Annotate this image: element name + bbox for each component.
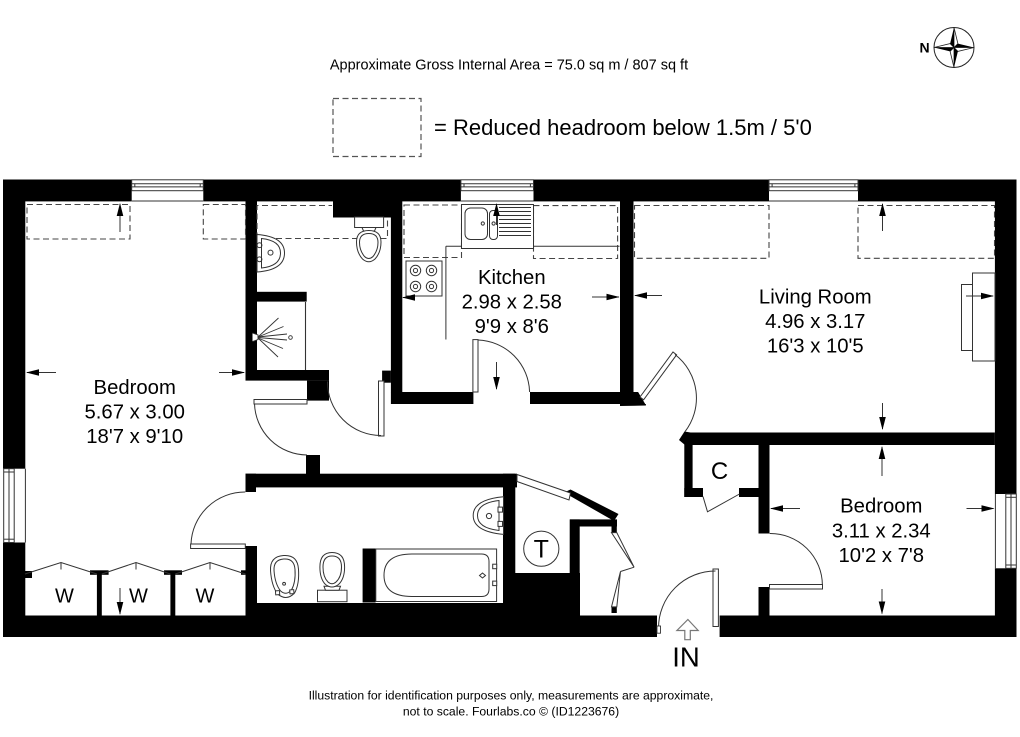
- svg-text:Kitchen: Kitchen: [478, 267, 546, 289]
- svg-text:IN: IN: [672, 642, 700, 673]
- svg-text:T: T: [534, 536, 549, 564]
- svg-text:Living Room: Living Room: [759, 287, 872, 309]
- svg-text:W: W: [55, 586, 74, 608]
- svg-text:16'3 x 10'5: 16'3 x 10'5: [767, 336, 864, 358]
- svg-text:5.67 x 3.00: 5.67 x 3.00: [85, 402, 185, 424]
- svg-text:not to scale. Fourlabs.co © (I: not to scale. Fourlabs.co © (ID1223676): [403, 705, 619, 719]
- svg-text:9'9 x 8'6: 9'9 x 8'6: [475, 316, 549, 338]
- svg-text:2.98 x 2.58: 2.98 x 2.58: [462, 292, 562, 314]
- svg-text:= Reduced headroom below 1.5m: = Reduced headroom below 1.5m / 5'0: [434, 115, 812, 140]
- svg-text:3.11 x 2.34: 3.11 x 2.34: [832, 520, 931, 542]
- svg-text:18'7 x 9'10: 18'7 x 9'10: [86, 426, 183, 448]
- svg-text:W: W: [196, 586, 215, 608]
- svg-text:C: C: [711, 458, 728, 485]
- svg-text:Illustration for identificatio: Illustration for identification purposes…: [309, 689, 714, 703]
- svg-text:Bedroom: Bedroom: [840, 496, 922, 518]
- svg-text:Bedroom: Bedroom: [94, 377, 176, 399]
- svg-text:W: W: [129, 586, 148, 608]
- svg-text:Approximate Gross Internal Are: Approximate Gross Internal Area = 75.0 s…: [330, 58, 688, 74]
- svg-text:N: N: [919, 40, 929, 56]
- svg-text:4.96 x 3.17: 4.96 x 3.17: [765, 311, 865, 333]
- svg-text:10'2 x 7'8: 10'2 x 7'8: [839, 545, 925, 567]
